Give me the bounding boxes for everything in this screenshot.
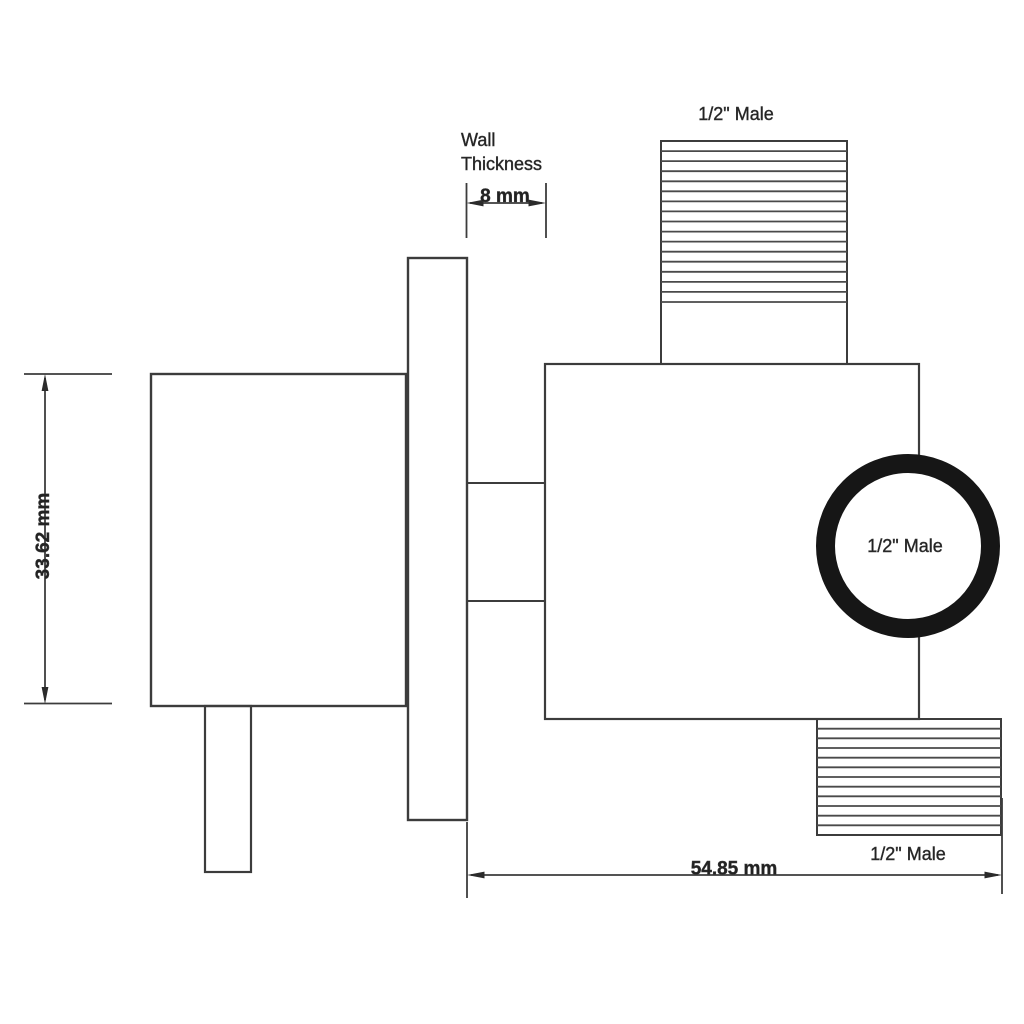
svg-text:1/2" Male: 1/2" Male bbox=[698, 104, 773, 124]
svg-text:1/2" Male: 1/2" Male bbox=[870, 844, 945, 864]
svg-text:Wall: Wall bbox=[461, 130, 495, 150]
svg-text:Thickness: Thickness bbox=[461, 154, 542, 174]
svg-text:1/2" Male: 1/2" Male bbox=[867, 536, 942, 556]
svg-text:33.62 mm: 33.62 mm bbox=[33, 493, 54, 580]
svg-text:8 mm: 8 mm bbox=[480, 186, 530, 207]
svg-text:54.85 mm: 54.85 mm bbox=[691, 859, 778, 880]
